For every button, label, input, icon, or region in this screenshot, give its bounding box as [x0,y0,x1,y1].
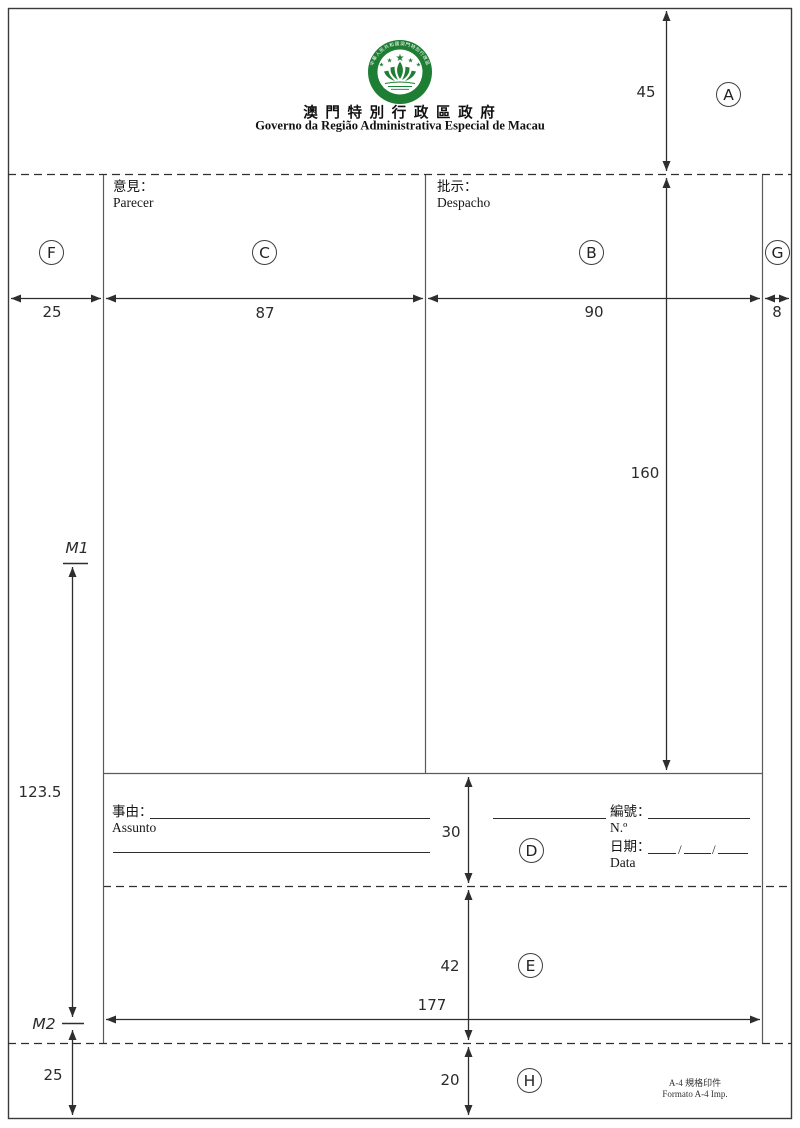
region-label-f: F [39,240,64,265]
numero-label-pt: N.º [610,821,627,835]
footer-note: A-4 規格印件 Formato A-4 Imp. [635,1078,755,1100]
dim-col-c: 87 [255,304,274,322]
dimension-arrows [11,11,789,1115]
date-slash-1: / [678,842,682,858]
date-slash-2: / [712,842,716,858]
assunto-label-pt: Assunto [112,821,156,835]
numero-label-zh: 編號： [610,805,651,819]
dim-margin-right: 8 [772,303,782,321]
dim-height-e: 42 [440,957,459,975]
region-label-b: B [579,240,604,265]
date-label-zh: 日期： [610,840,651,854]
form-spec-sheet: 中華人民共和國澳門特別行政區 MACAU ★ ★ ★ ★ ★ [0,0,800,1128]
svg-text:★: ★ [379,62,384,69]
dim-span-m: 123.5 [19,783,62,801]
gov-title-pt: Governo da Região Administrativa Especia… [255,119,545,134]
despacho-label-zh: 批示： [437,180,478,194]
footer-note-zh: A-4 規格印件 [635,1078,755,1089]
macau-emblem-icon: 中華人民共和國澳門特別行政區 MACAU ★ ★ ★ ★ ★ [368,40,432,104]
region-label-h: H [517,1068,542,1093]
region-boundary-lines [103,175,763,1043]
region-label-a: A [716,82,741,107]
region-label-d: D [519,838,544,863]
parecer-label-zh: 意見： [113,180,154,194]
marker-m2: M2 [32,1015,55,1033]
diagram-linework: 中華人民共和國澳門特別行政區 MACAU ★ ★ ★ ★ ★ [0,0,800,1128]
svg-text:★: ★ [416,62,421,69]
dim-height-d: 30 [441,823,460,841]
dim-margin-left: 25 [42,303,61,321]
dim-col-b: 90 [584,303,603,321]
m-tick-marks [62,564,88,1024]
svg-text:★: ★ [387,57,393,65]
form-field-lines [113,819,750,854]
dim-width-form: 177 [418,996,447,1014]
dashed-section-lines [8,175,792,1044]
dim-margin-bottom: 25 [43,1066,62,1084]
assunto-label-zh: 事由： [112,805,153,819]
svg-text:★: ★ [408,57,414,65]
dim-margin-top: 45 [636,83,655,101]
footer-note-pt: Formato A-4 Imp. [635,1089,755,1100]
parecer-label-pt: Parecer [113,196,153,210]
region-label-g: G [765,240,790,265]
region-label-c: C [252,240,277,265]
region-label-e: E [518,953,543,978]
despacho-label-pt: Despacho [437,196,490,210]
dim-height-cb: 160 [631,464,660,482]
dim-height-h: 20 [440,1071,459,1089]
marker-m1: M1 [65,539,88,557]
date-label-pt: Data [610,856,635,870]
